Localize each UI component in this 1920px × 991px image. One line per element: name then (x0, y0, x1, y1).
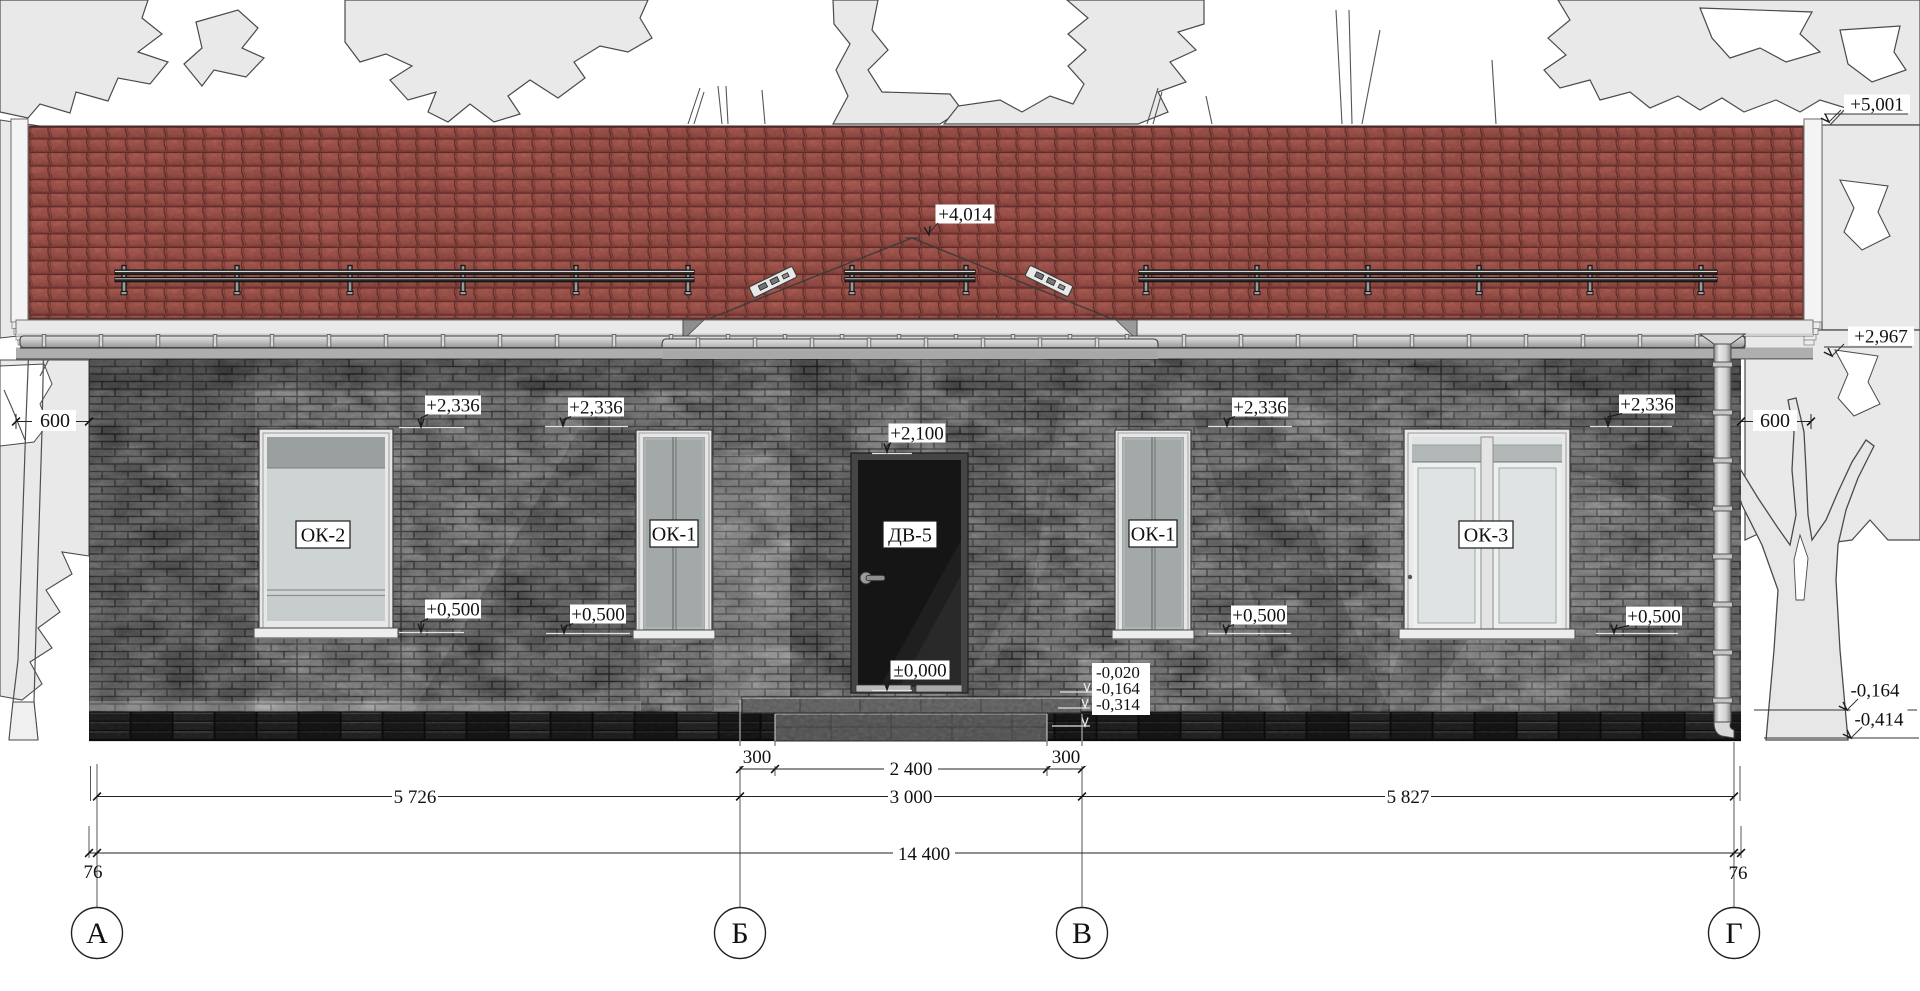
svg-text:Г: Г (1725, 917, 1742, 950)
svg-text:ОК-2: ОК-2 (301, 525, 345, 547)
svg-text:А: А (86, 917, 108, 950)
svg-text:600: 600 (1760, 410, 1790, 432)
svg-text:+2,967: +2,967 (1854, 327, 1907, 348)
svg-text:14 400: 14 400 (898, 844, 950, 865)
svg-text:ОК-3: ОК-3 (1464, 525, 1508, 547)
svg-text:5 726: 5 726 (394, 787, 437, 808)
svg-text:76: 76 (84, 862, 103, 883)
svg-text:В: В (1072, 917, 1092, 950)
svg-text:±0,000: ±0,000 (893, 661, 946, 682)
svg-text:+2,336: +2,336 (1233, 398, 1286, 419)
svg-text:+2,336: +2,336 (426, 396, 479, 417)
svg-text:+0,500: +0,500 (1232, 606, 1285, 627)
svg-text:Б: Б (731, 917, 748, 950)
svg-text:+2,336: +2,336 (569, 398, 622, 419)
svg-text:ОК-1: ОК-1 (652, 524, 696, 546)
svg-text:5 827: 5 827 (1387, 787, 1430, 808)
svg-text:+2,336: +2,336 (1620, 395, 1673, 416)
svg-text:+0,500: +0,500 (1627, 607, 1680, 628)
svg-text:ДВ-5: ДВ-5 (888, 525, 932, 547)
svg-text:+5,001: +5,001 (1850, 95, 1903, 116)
svg-text:600: 600 (40, 410, 70, 432)
svg-text:3 000: 3 000 (890, 787, 933, 808)
svg-text:76: 76 (1729, 863, 1748, 884)
svg-text:+0,500: +0,500 (426, 600, 479, 621)
svg-text:300: 300 (1052, 747, 1081, 768)
svg-text:-0,314: -0,314 (1096, 695, 1140, 714)
svg-text:-0,164: -0,164 (1850, 681, 1900, 702)
svg-text:ОК-1: ОК-1 (1131, 524, 1175, 546)
svg-text:300: 300 (743, 747, 772, 768)
svg-text:+0,500: +0,500 (571, 605, 624, 626)
svg-text:+2,100: +2,100 (890, 424, 943, 445)
svg-text:2 400: 2 400 (890, 759, 933, 780)
svg-text:+4,014: +4,014 (938, 205, 992, 226)
